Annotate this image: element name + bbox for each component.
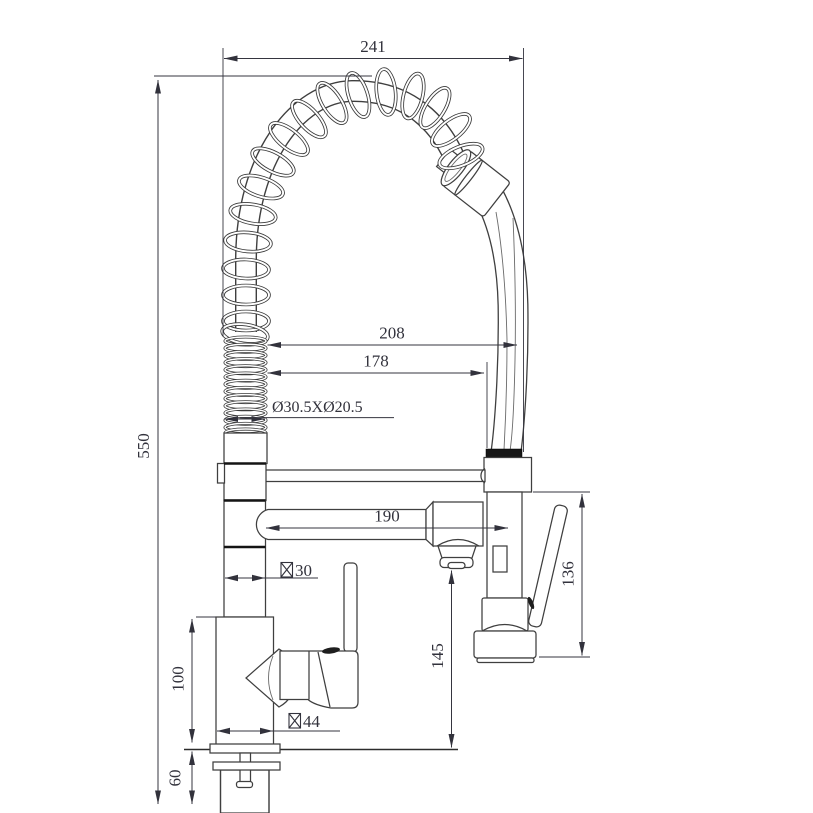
stud-foot	[237, 782, 253, 788]
main-handle-lever	[344, 563, 357, 652]
missing-glyph-box	[289, 714, 301, 729]
support-bar	[264, 469, 485, 484]
dim-shank-length: 60	[166, 752, 193, 805]
dim-label-reach-inner: 178	[363, 352, 389, 371]
spring-coil-dense	[221, 321, 269, 437]
hose-fitting-ring	[486, 449, 522, 458]
dim-label-handle-height: 136	[559, 561, 578, 587]
dim-label-shank-length: 60	[166, 770, 185, 787]
locking-nut	[482, 598, 528, 631]
dim-label-column-diameter: 30	[295, 561, 312, 580]
aerator-outlet	[448, 563, 465, 569]
missing-glyph-box	[281, 563, 293, 578]
handle-pivot	[280, 646, 358, 708]
dim-label-body-diameter: 44	[303, 712, 321, 731]
aerator	[438, 546, 476, 558]
dim-label-body-height: 100	[169, 666, 188, 692]
dim-label-reach-outer: 208	[379, 324, 405, 343]
dim-reach-outer: 208	[268, 324, 518, 346]
escutcheon-plate	[210, 744, 280, 753]
dim-label-overall-height: 550	[134, 433, 153, 459]
mounting-parts	[210, 744, 280, 813]
dim-outlet-height: 145	[428, 571, 452, 748]
dim-label-outlet-height: 145	[428, 643, 447, 669]
dim-label-spout-length: 190	[374, 507, 400, 526]
dim-body-height: 100	[169, 617, 217, 743]
pulldown-hose	[489, 196, 515, 452]
mounting-flange	[213, 762, 280, 770]
diverter-tab	[493, 546, 507, 572]
spring-retainer	[224, 433, 267, 464]
dim-label-overall-width: 241	[360, 37, 386, 56]
valve-column	[487, 492, 522, 598]
technical-drawing-canvas: 241 550 208 178 Ø30.5XØ20.5 190	[0, 0, 813, 813]
dim-label-spring-spec: Ø30.5XØ20.5	[272, 399, 363, 416]
